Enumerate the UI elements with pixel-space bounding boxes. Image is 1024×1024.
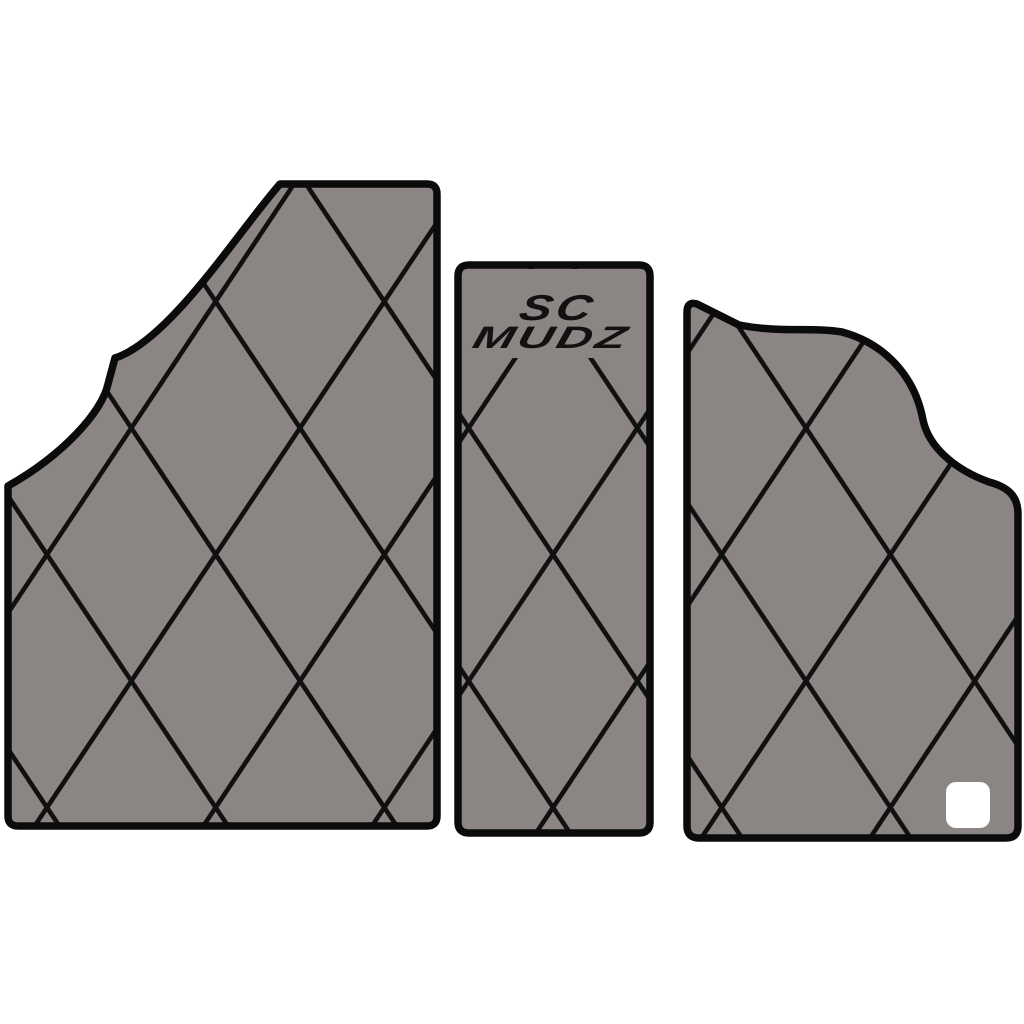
quilt-stitch-line	[0, 960, 1024, 1024]
mat-pieces	[0, 0, 1024, 1024]
quilt-stitch-line	[0, 830, 1024, 1024]
product-graphic: SC MUDZ	[0, 0, 1024, 1024]
quilt-stitch-line	[0, 830, 1024, 1024]
quilt-stitch-line	[0, 960, 1024, 1024]
quilt-stitch-line	[0, 960, 1024, 1024]
white-patch	[946, 782, 990, 828]
floor-mat-set-graphic: SC MUDZ	[0, 0, 1024, 1024]
brand-logo-line2: MUDZ	[469, 320, 634, 355]
quilt-stitch-line	[0, 830, 1024, 1024]
right-mat-fill	[687, 303, 1018, 838]
